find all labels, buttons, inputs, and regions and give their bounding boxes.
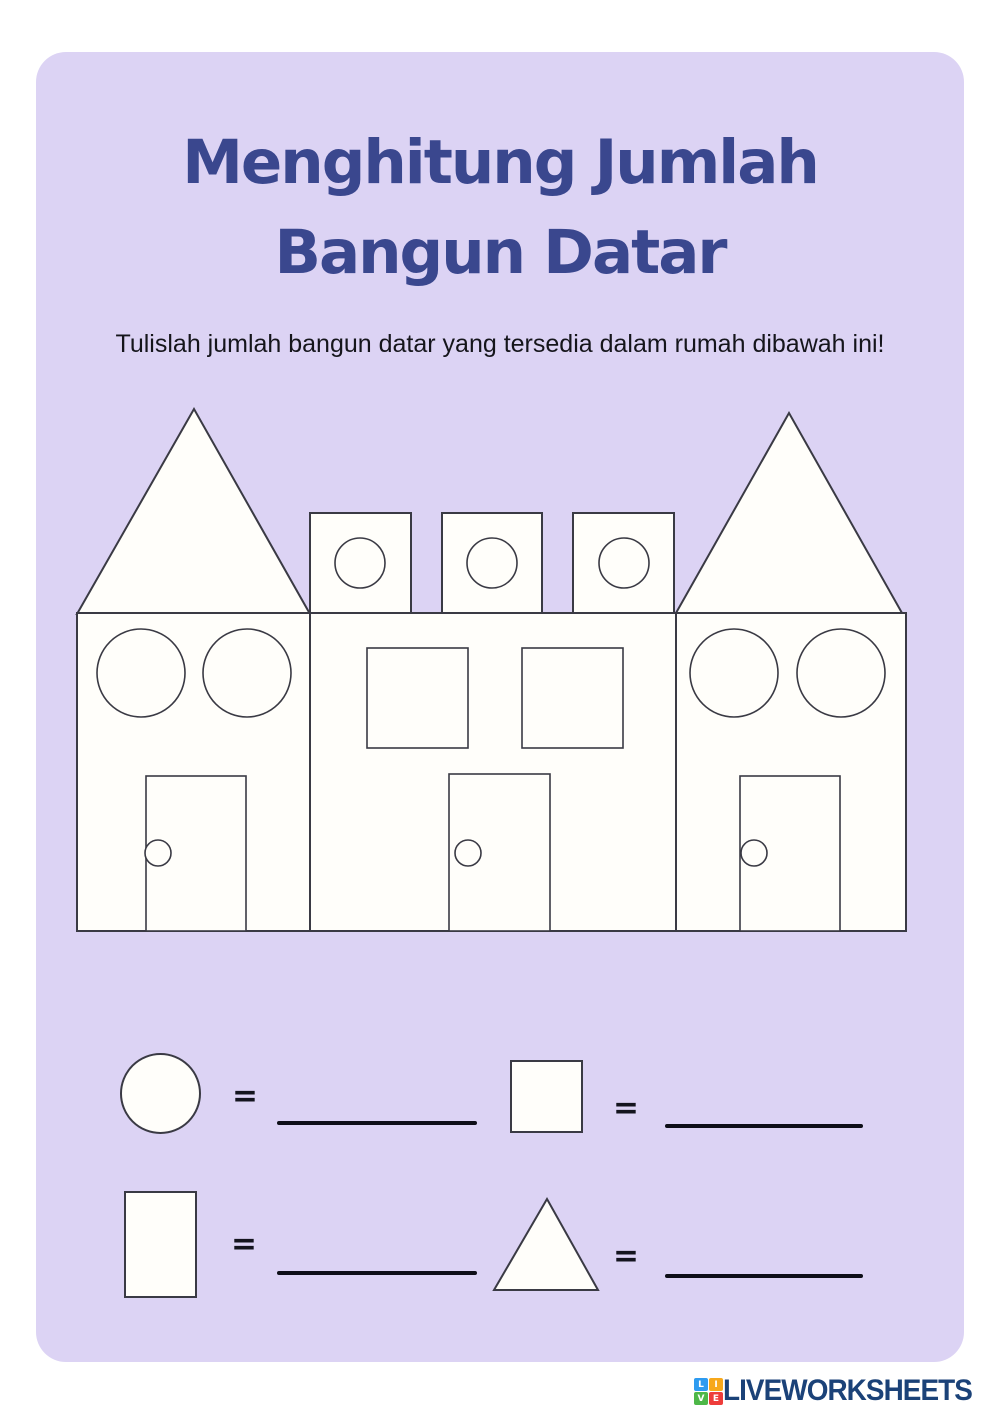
battlement-circle-1 [335,538,385,588]
liveworksheets-logo-text: LIVEWORKSHEETS [723,1376,972,1406]
logo-block-l: L [694,1378,708,1391]
equals-sign-square: = [609,1090,643,1126]
equals-sign-rectangle: = [227,1226,261,1262]
middle-house-window-square-2 [522,648,623,748]
answer-shape-circle [120,1053,201,1134]
middle-house-doorknob-circle [455,840,481,866]
answer-shape-rectangle [124,1191,197,1298]
equals-sign-triangle: = [609,1238,643,1274]
answer-blank-circle[interactable] [277,1121,477,1125]
middle-house-window-square-1 [367,648,468,748]
answer-shape-triangle [490,1192,604,1294]
liveworksheets-logo-icon: L I V E [694,1378,723,1405]
page-title: Menghitung Jumlah Bangun Datar [0,118,1000,298]
answer-shape-square [510,1060,583,1133]
left-house-roof-triangle [77,409,310,614]
battlement-circle-3 [599,538,649,588]
logo-block-v: V [694,1392,708,1405]
instruction-text: Tulislah jumlah bangun datar yang tersed… [0,330,1000,359]
worksheet-page: Menghitung Jumlah Bangun Datar Tulislah … [0,0,1000,1415]
houses-illustration [50,395,920,940]
right-house-doorknob-circle [741,840,767,866]
logo-block-e: E [709,1392,723,1405]
equals-sign-circle: = [228,1078,262,1114]
page-title-line-2: Bangun Datar [0,208,1000,298]
left-house-doorknob-circle [145,840,171,866]
answer-blank-triangle[interactable] [665,1274,863,1278]
right-house-window-circle-2 [797,629,885,717]
logo-block-i: I [709,1378,723,1391]
right-house-roof-triangle [676,413,902,613]
left-house-window-circle-1 [97,629,185,717]
battlement-circle-2 [467,538,517,588]
right-house-window-circle-1 [690,629,778,717]
left-house-window-circle-2 [203,629,291,717]
page-title-line-1: Menghitung Jumlah [0,118,1000,208]
answer-blank-rectangle[interactable] [277,1271,477,1275]
answer-blank-square[interactable] [665,1124,863,1128]
